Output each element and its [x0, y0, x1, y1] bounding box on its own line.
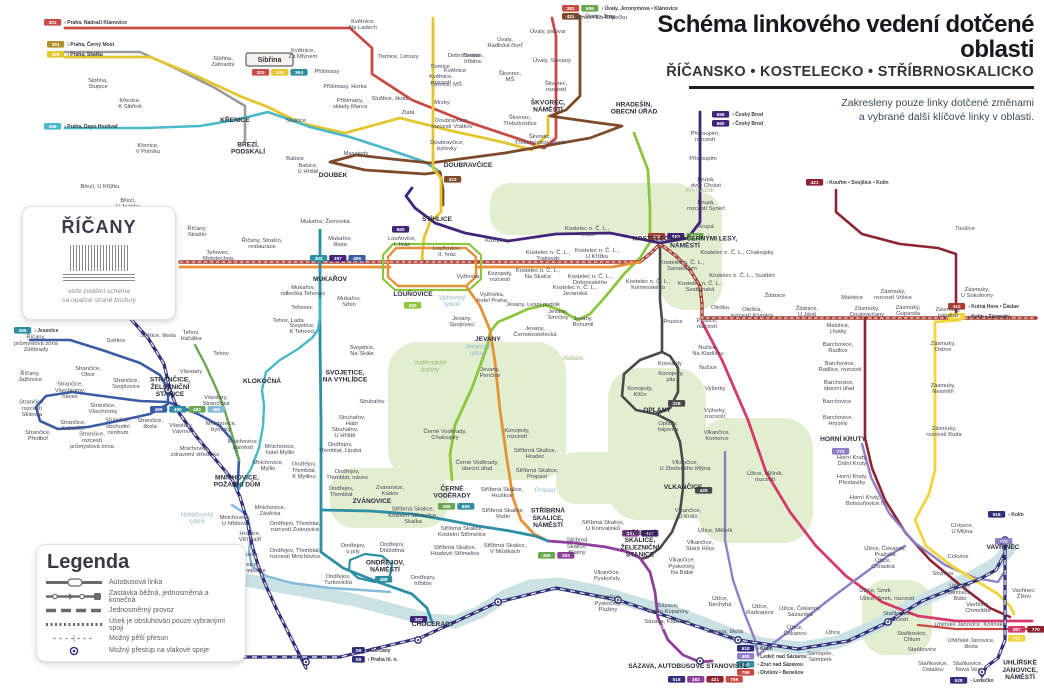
station-label: Březí, U Křížku — [81, 184, 120, 190]
bus-line — [320, 230, 321, 510]
line-badge-number: S9 — [355, 648, 361, 654]
bus-line — [388, 248, 476, 286]
station-label: Úžice — [826, 629, 841, 636]
station-label: Svojetice,K Tehovci — [289, 323, 315, 335]
station-label: Světice — [106, 338, 125, 344]
station-label: Jevany,Černokostelecká — [513, 326, 557, 338]
hub-label: SVOJETICE,NA VYHLÍDCE — [323, 369, 368, 383]
station-label: Kozojedy,rozcestí — [487, 271, 512, 283]
terminal-label: › Jesenice — [34, 328, 58, 334]
station-label: Ondřejov,Třemblat, Lipská — [319, 442, 363, 454]
station-label: Úžice, Čekanov,Pražská — [864, 545, 906, 558]
station-label: Horní Kruty,Přestavlky — [837, 474, 868, 486]
station-label: Škvorec,MŠ — [499, 70, 522, 83]
legend-label: Úsek je obsluhován pouze vybranými spoji — [109, 618, 237, 632]
station-label: Křenice,K Sibřině — [118, 98, 142, 110]
station-label: Barchovice,obecní úřad — [824, 380, 855, 392]
line-badge-number: 382 — [692, 677, 700, 683]
station-label: Mnichovice,náměstí — [228, 439, 259, 451]
station-label: Zásmuky,Ostrov — [931, 341, 956, 353]
station-label: Barchovice — [823, 399, 852, 405]
bus-line — [30, 340, 239, 492]
station-label: Mukařov,Srbín — [337, 296, 361, 308]
station-label: Struhařov,Habr — [339, 415, 366, 427]
station-label: Horní Kruty,Bohouňovice II — [846, 495, 885, 507]
station-label: Tehov,Hačálka — [181, 330, 203, 342]
station-label: Zásmuky,rozcestí Buda — [926, 426, 962, 438]
water-label: Vyžlovskýrybník — [439, 296, 467, 308]
station-label: Malotice — [841, 295, 863, 301]
station-label: Mnichovice,zdravotní středisko — [171, 446, 220, 458]
line-badge-number: 489 — [380, 577, 388, 583]
station-label: Jevany,Bohumil — [573, 316, 594, 328]
station-label: Kostelec n. Č. L.,U Křížku — [575, 247, 620, 260]
hub-label: VLKANČICE — [664, 482, 703, 491]
station-label: Doubravčice,bytovky — [430, 140, 464, 152]
station-label: Stříbrná Skalice,U Konvalinků — [582, 520, 625, 532]
station-label: Staňkovice,Nová Ves — [953, 661, 983, 673]
train-station-icon-dot — [699, 660, 701, 662]
station-label: Ondřejov,u pily — [341, 543, 366, 555]
line-badge-number: 387 — [334, 256, 342, 262]
hub-label: KLOKOČNÁ — [243, 376, 281, 385]
line-badge-number: 489 — [353, 256, 361, 262]
hub-label: ZVÁNOVICE — [353, 496, 392, 505]
station-label: Strančice,obchodnícentrum — [105, 418, 131, 437]
note-line-1: Zakresleny pouze linky dotčené změnami — [582, 97, 1034, 111]
hub-label: STRANČICE,ŽELEZNIČNÍSTANICE — [150, 375, 190, 398]
station-label: Vlkančice,Stará Hůra — [686, 540, 715, 552]
station-label: Staňkovice — [908, 647, 936, 653]
station-label: Strančice,Kašovice — [60, 420, 86, 432]
station-label: Úžice,Čekanov — [784, 624, 807, 637]
line-badge-number: 421 — [711, 677, 719, 683]
line-badge-number: 518 — [993, 512, 1001, 518]
hub-label: SÁZAVA, AUTOBUSOVÉ STANOVIŠTĚ — [628, 661, 748, 670]
line-badge-number: 480 — [443, 504, 451, 510]
note-line-2: a vybrané další klíčové linky v oblasti. — [582, 111, 1034, 125]
terminal-label: › Kolín — [1008, 512, 1024, 518]
station-label: Kostelec n. Č. L., Svatbín — [709, 272, 774, 279]
line-badge-number: 303 — [315, 256, 323, 262]
station-label: Všestary,Strančická — [202, 395, 230, 407]
station-label: Jevany,Smrčiny — [548, 309, 569, 321]
line-badge-number: 489 — [155, 407, 163, 413]
station-label: Kostelec n. Č. L.,Na Skalce — [516, 267, 561, 280]
station-label: Úvaly,Radlická čtvrť — [487, 36, 523, 49]
hub-label: OPLANY — [643, 407, 671, 414]
bus-line — [915, 320, 1014, 614]
station-label: Uhlířské Janovice,škola — [947, 638, 995, 650]
hub-label: JEVANY — [475, 336, 501, 343]
line-badge-number: 421 — [811, 180, 819, 186]
station-label: Úvaly, Slovany — [533, 57, 571, 64]
station-label: Tismice,hřbitov — [462, 53, 484, 65]
station-label: Tehov — [213, 351, 229, 357]
line-badge-number: 495 — [19, 328, 27, 334]
station-label: Ondřejov,Třemblat — [329, 486, 354, 498]
station-label: Ondřejov,Turkovická — [324, 574, 353, 586]
station-label: Ondřejov, Třemblat,rozcestí Mnichovice — [270, 548, 321, 560]
station-label: Stříbrná Skalice,V Můstkách — [484, 543, 527, 555]
line-badge-number: 391 — [52, 42, 60, 48]
station-label: Vlkančice,Pyskočely — [594, 570, 621, 582]
ricany-inset: ŘÍČANY vizte zvláštní schéma na opačné s… — [22, 206, 176, 320]
walk-transfer-glyph — [45, 634, 103, 643]
station-label: Vlkančice,Pyskočely,Na Bábě — [668, 558, 696, 577]
terminal-label: › Ledeč nad Sázavou — [757, 654, 806, 660]
hub-label: HORNÍ KRUTY — [820, 434, 866, 443]
station-label: Strančice,Předboř — [25, 430, 51, 442]
station-label: Ždánice,U Jánů — [796, 304, 819, 318]
line-badge-number: 387 — [1013, 627, 1021, 633]
station-label: Úžice, Smrk, rozcestí — [860, 595, 915, 602]
station-label: Úvaly, pivovar — [530, 28, 566, 35]
station-label: Mnichovice,hotel Myllin — [265, 444, 296, 456]
station-label: Ondřejov,Třemblat,K Myllinu — [292, 462, 317, 481]
station-label: Zlatá — [402, 110, 416, 116]
terminal-label: › Praha hl. n. — [368, 657, 399, 663]
line-badge-number: 759 — [730, 677, 738, 683]
legend-item: Jednosměrný provoz — [45, 606, 237, 615]
train-station-icon-dot — [737, 639, 739, 641]
station-label: Louňovice,II. hráz — [433, 246, 461, 258]
station-label: Konojedy — [658, 361, 682, 367]
line-badge-number: 480 — [543, 553, 551, 559]
legend-label: Jednosměrný provoz — [109, 607, 174, 614]
hub-label: DOUBEK — [319, 172, 348, 179]
station-label: Horní Kruty,Dolní Kruty — [837, 455, 868, 467]
one-way-glyph — [45, 606, 103, 615]
station-label: Církvice — [948, 554, 969, 560]
line-badge-number: 423 — [449, 177, 457, 183]
station-label: Jevany, Lesní podnik — [506, 302, 560, 308]
station-label: Škvorec,Třebohostice — [503, 114, 537, 127]
area-label: Přehvozdí — [686, 187, 715, 194]
station-label: Ondřejov,Dlážděná — [380, 542, 405, 554]
station-label: Jevany,Spojovací — [449, 316, 475, 328]
terminal-label: › Divišov • Benešov — [757, 670, 803, 676]
river-label: ‹ Sázava ‹ — [465, 580, 495, 587]
station-label: Říčany, Strašín,restaurace — [242, 236, 283, 250]
hub-label: STŘÍBRNÁSKALICE,ŽELEZNIČNÍSTANICE — [621, 528, 660, 558]
station-label: Světice, škola — [140, 333, 177, 339]
line-badge-number: 485 — [212, 407, 220, 413]
station-label: Konojedy,rozcestí — [504, 428, 530, 440]
station-label: Tismice, Limuzy — [377, 54, 418, 60]
station-label: Babice — [286, 156, 304, 162]
station-label: Říčany,průmyslová zónaZděbrady — [14, 333, 59, 354]
station-label: Kostelec n. Č. L.,Trativody — [526, 249, 571, 262]
line-badge-number: 329 — [276, 70, 284, 76]
station-label: Všestary,Vávrov — [169, 423, 193, 435]
station-label: Nučice,Na Kladívku — [692, 345, 723, 357]
station-label: Babice,U Hřiště — [298, 163, 319, 175]
station-label: Stříbrná Skalice,Kostelní Střimelice — [438, 526, 486, 538]
line-badge-number: 665 — [462, 504, 470, 510]
station-label: Vyžlovka — [457, 274, 481, 280]
title-block: Schéma linkového vedení dotčené oblasti … — [582, 12, 1034, 125]
station-label: Vyžlovka,hotel Praha — [477, 292, 507, 304]
station-label: Vlkančice,Pyskočely,Plužiny — [594, 595, 622, 614]
station-label: Zásmuky,náměstí — [936, 307, 961, 319]
station-label: Mnichovice,U hřbitova — [220, 515, 251, 527]
title-divider — [689, 86, 1034, 89]
line-badge-number: 483 — [409, 303, 417, 309]
line-badge-number: S9 — [355, 657, 361, 663]
station-label: Tehovec,Mototechna — [203, 250, 234, 262]
station-label: Hrusice,Vlčí halíř — [239, 531, 263, 543]
train-station-icon-dot — [417, 639, 419, 641]
station-label: Úžice,Chrastná — [871, 557, 895, 570]
station-label: Kostelec n. Č. L.,Komenského — [626, 278, 671, 291]
station-label: Jevany,Penčice — [480, 367, 501, 379]
station-label: Kostelec n. Č. L.,Jevanská — [553, 284, 598, 297]
station-label: Zásmuky,U Sokolovny — [961, 287, 994, 299]
station-label: Uhlířské Janovice, Kolínská — [934, 622, 1006, 628]
line-badge-number: 495 — [174, 407, 182, 413]
line-badge-number: 329 — [52, 52, 60, 58]
train-station-icon-dot — [981, 671, 983, 673]
hub-label: DOUBRAVČICE — [444, 160, 493, 169]
station-label: Přistoupim,rozcestí — [691, 131, 720, 143]
station-label: Kozojedy — [485, 238, 509, 244]
station-label: Masojedy — [344, 151, 369, 157]
terminal-label: › Zruč nad Sázavou — [757, 662, 803, 668]
line-badge-number: 485 — [742, 654, 750, 660]
legend-label: Možný přestup na vlakové spoje — [109, 647, 209, 654]
legend-item: Možný pěší přesun — [45, 634, 237, 643]
station-label: Prusice,rozcestí — [697, 318, 718, 330]
station-label: Ondřejov, Třemblat,rozcestí Zvánovice — [270, 521, 321, 533]
bus-line — [330, 16, 622, 205]
station-label: Zásmuky,Doubravčany — [850, 306, 884, 318]
station-label: Přišimasy, Horka — [323, 84, 367, 90]
river-label: ‹ Sázava ‹ — [647, 624, 677, 631]
legend: Legenda Autobusová linka Zastávka běžná,… — [36, 544, 246, 662]
legend-label: Autobusová linka — [109, 579, 162, 586]
station-label: Tehovec — [291, 305, 313, 311]
line-badge-number: 482 — [193, 407, 201, 413]
terminal-label: › Kouřim • Svojšice • Kolín — [826, 180, 888, 186]
station-label: Struhařov — [359, 399, 384, 405]
line-badge-number: 303 — [257, 70, 265, 76]
legend-item: Úsek je obsluhován pouze vybranými spoji — [45, 618, 237, 632]
station-label: StříbrnáSkalice,Blatiny — [567, 538, 588, 557]
station-label: Struhařov,U Hřiště — [332, 427, 359, 439]
legend-label: Možný pěší přesun — [109, 635, 168, 642]
legend-item: Zastávka běžná, jednosměrná a konečná — [45, 590, 237, 604]
terminal-label: › Čerčany — [368, 647, 391, 654]
station-label: Strančice,Svojšovice — [112, 378, 140, 390]
station-label: Tismice, MŠ — [430, 81, 462, 88]
station-label: Mnichovice,Myllin — [253, 460, 284, 472]
transit-map-page: Sibřina303329364412659666423660483303387… — [0, 0, 1044, 691]
hub-label: STŘÍBRNÁSKALICE,NÁMĚSTÍ — [531, 506, 565, 529]
station-label: Úžice,Radvanice — [746, 603, 773, 616]
station-label: UhlířskéJanovice,Bláto — [948, 584, 973, 603]
station-label: Výžerky,rozcestí — [704, 408, 726, 420]
station-label: Škvorec,Třebohostice, škola — [515, 133, 566, 146]
station-label: Strančice,Otice — [75, 366, 101, 378]
station-label: Oplany,hájovna — [658, 421, 679, 433]
station-label: Mnichovice,Závěrka — [255, 505, 286, 517]
stop-types-glyph — [45, 592, 103, 601]
legend-title: Legenda — [47, 551, 237, 574]
page-subtitle: ŘÍČANSKO • KOSTELECKO • STŘÍBRNOSKALICKO — [582, 64, 1034, 80]
station-label: Sluštice — [286, 118, 306, 124]
station-label: Vavřinec,Chmeliště — [965, 602, 991, 614]
line-badge-number: 660 — [397, 227, 405, 233]
station-label: Říčany,Jažlovice — [18, 369, 42, 383]
hub-label: BŘEZÍ,PODSKALÍ — [231, 139, 265, 155]
hub-label: MUKAŘOV — [313, 274, 348, 283]
terminal-label: › Kolín • Zásmuky — [968, 314, 1010, 320]
line-badge-number: 528 — [955, 678, 963, 684]
station-label: Přišimasy — [314, 69, 339, 75]
station-label: Květnice,Za Mlýnem — [289, 48, 318, 60]
station-label: Barchovice,Radlice — [823, 342, 854, 354]
station-label: Malotice,Lhotky — [826, 323, 850, 335]
station-label: Staňkovice,Ostašov — [918, 661, 948, 673]
station-label: Prusice — [663, 319, 682, 325]
train-transfer-glyph — [45, 646, 103, 656]
station-label: Samopše,Talmberk — [807, 651, 833, 663]
train-station-icon-dot — [305, 661, 307, 663]
station-label: Kostelec n. Č. L., Chaloupky — [700, 249, 773, 256]
station-label: Kostelec n. Č. L.,Truba — [565, 225, 610, 238]
ricany-schematic-icon — [70, 245, 128, 271]
station-label: Zásmuky,Nesměň — [931, 383, 956, 395]
station-box-label: Sibřina — [258, 57, 282, 64]
station-label: Úžice, Mělník — [698, 527, 733, 534]
line-badge-number: 759 — [742, 670, 750, 676]
area-label: Aldašín — [562, 355, 584, 362]
station-label: Toušice — [955, 226, 975, 232]
station-label: Všestary — [180, 369, 203, 375]
station-label: Barchovice,Hryzely — [823, 415, 854, 427]
line-badge-number: 770 — [1032, 627, 1040, 633]
station-label: Mrzky — [434, 100, 450, 106]
hub-label: CHOCERADY — [412, 621, 455, 628]
station-label: Krupá — [698, 224, 714, 230]
line-badge-number: 771 — [1013, 636, 1021, 642]
station-label: Úžice, Smrk — [859, 587, 890, 594]
terminal-label: › Ledečko — [970, 678, 993, 684]
station-label: Přišimasy,sklady Marca — [333, 98, 368, 110]
terminal-label: › Praha, Skalka — [67, 52, 103, 58]
terminal-label: › Praha, Nádraží Klánovice — [64, 20, 127, 26]
station-label: Květnice,Na Ladech — [349, 19, 377, 31]
station-label: Strančice,škola — [137, 418, 163, 430]
hub-label: ŠTÍHLICE — [422, 214, 453, 223]
bus-line-glyph — [45, 578, 103, 587]
line-badge-number: 301 — [49, 20, 57, 26]
station-label: Úžice,Nechyba — [709, 595, 733, 608]
terminal-label: › Kolín — [757, 646, 773, 652]
station-label: Doubravčice,rozcestí Vrátkov — [431, 118, 472, 130]
ricany-schematic-icon-2 — [63, 272, 135, 281]
park-area — [556, 452, 632, 504]
water-label: Hubačovskýrybník — [181, 513, 215, 525]
station-label: Výžerky — [705, 386, 726, 392]
station-label: Sázava, škola — [707, 629, 744, 635]
station-label: Říčany,Strašín — [187, 224, 207, 238]
station-label: Oleška — [711, 305, 730, 311]
station-label: Vavřinec,Žíšov — [1012, 588, 1036, 600]
station-label: Strančice,rozcestíSklenka — [19, 400, 45, 419]
ricany-title: ŘÍČANY — [23, 217, 175, 238]
line-badge-number: 381 — [567, 6, 575, 12]
legend-item: Možný přestup na vlakové spoje — [45, 646, 237, 656]
station-label: Zásmuky,rozcestí Vršice — [874, 289, 912, 301]
hub-label: VAVŘINEC — [986, 542, 1019, 551]
line-badge-number: 518 — [742, 646, 750, 652]
terminal-label: › Praha, Depo Hostivař — [64, 124, 118, 130]
station-label: Oleška,rozcestí Krymlov — [731, 307, 774, 319]
station-label: Úžice, Čekanov,Sázavská — [779, 605, 821, 618]
station-label: Vlkančice,Komorce — [704, 430, 731, 442]
line-badge-number: 364 — [295, 70, 303, 76]
station-label: Sluštice, škola — [371, 96, 409, 102]
station-label: Sibřina,Stupice — [88, 78, 108, 90]
terminal-label: › Praha, Černý Most — [67, 41, 114, 48]
station-label: Přistoupim — [689, 156, 717, 162]
station-label: Škvorec,rozcestí — [545, 80, 568, 93]
train-station-icon-dot — [497, 601, 499, 603]
legend-item: Autobusová linka — [45, 578, 237, 587]
hub-label: ŠKVOREC,NÁMĚSTÍ — [531, 97, 566, 113]
station-label: Svojetice,Na Skále — [349, 345, 375, 357]
line-badge-number: 228 — [673, 401, 681, 407]
water-label: Propast — [535, 488, 556, 494]
terminal-label: › Kutná Hora • Čáslav — [968, 303, 1019, 310]
hub-label: ONDŘEJOV,NÁMĚSTÍ — [366, 557, 404, 573]
line-badge-number: 518 — [673, 677, 681, 683]
hub-label: LOUŇOVICE — [393, 289, 433, 298]
station-label: Zásmuky,Oupanda — [896, 305, 921, 317]
hub-label: KŘENICE — [220, 115, 250, 124]
station-label: Mukařov, Žernovka — [300, 217, 350, 225]
station-label: Vlkančice,U Králů — [675, 508, 702, 520]
station-label: Církvice,U Mlýna — [951, 523, 974, 535]
line-badge-number: 366 — [49, 124, 57, 130]
ricany-caption-1: vizte zvláštní schéma — [23, 287, 175, 296]
station-label: Ždánice — [765, 291, 786, 299]
page-title: Schéma linkového vedení dotčené oblasti — [582, 12, 1034, 62]
selected-trips-glyph — [45, 620, 103, 629]
station-label: Stříbrná Skalice,Hradové Střimelice — [431, 545, 480, 557]
station-label: Strančice,Všechromy,náves — [55, 382, 86, 401]
station-label: Sibřina,Zahradní — [211, 56, 235, 68]
station-label: Barchovice,Radlice, rozcestí — [819, 361, 862, 373]
station-label: Nučice — [699, 365, 717, 371]
hub-label: UHLÍŘSKÉJANOVICE,NÁMĚSTÍ — [1002, 658, 1038, 681]
hub-label: MNICHOVICE,POŽÁRNÍ DŮM — [214, 474, 261, 488]
legend-label: Zastávka běžná, jednosměrná a konečná — [109, 590, 237, 604]
station-label: Mukařov,škola — [328, 236, 352, 248]
station-label: Křenice,V Polníku — [136, 143, 161, 155]
station-label: Tismice — [430, 64, 450, 70]
ricany-caption-2: na opačné straně brožury — [23, 296, 175, 305]
station-label: Strančice,Všechromy — [89, 403, 118, 415]
station-label: Ondřejov,hřbitov — [411, 575, 436, 587]
station-label: Skvrňov — [933, 571, 954, 577]
station-label: Stříbrná Skalice,Hruškov — [481, 487, 524, 499]
